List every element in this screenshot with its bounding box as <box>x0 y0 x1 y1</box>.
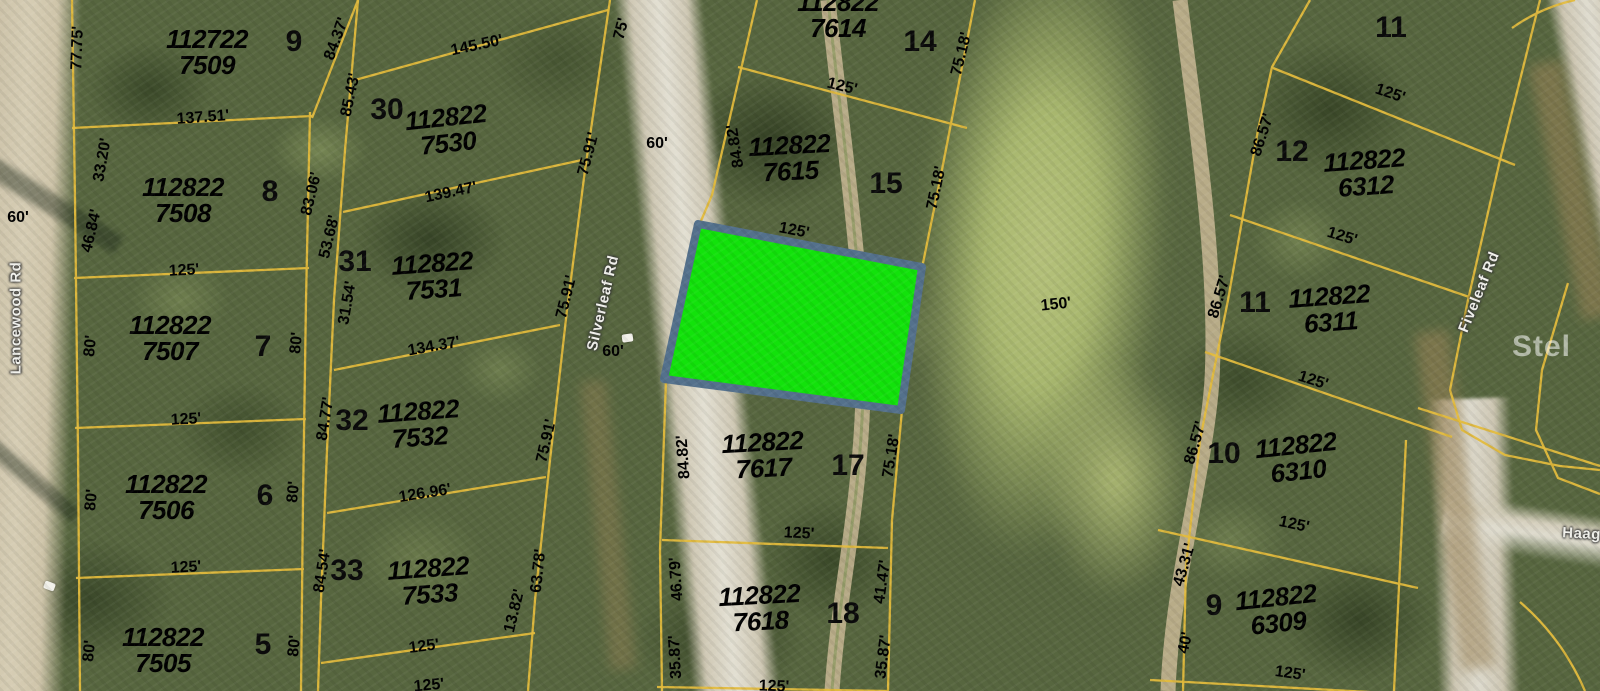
parcel-id-line2: 7617 <box>722 453 805 483</box>
parcel-id-112822-7530: 112822 7530 <box>404 100 491 160</box>
road-label-lancewood: Lancewood Rd <box>8 262 25 375</box>
parcel-id-112722-7509: 112722 7509 <box>166 26 248 78</box>
lot-number: 14 <box>903 27 936 57</box>
lot-number: 31 <box>338 247 371 277</box>
dimension-label: 80' <box>288 332 306 355</box>
dimension-label: 84.82' <box>674 435 693 480</box>
lot-number: 11 <box>1239 288 1271 318</box>
lot-number: 7 <box>255 332 272 362</box>
parcel-id-line2: 7509 <box>166 52 248 78</box>
parcel-id-line2: 7505 <box>122 650 204 676</box>
lot-number: 5 <box>255 630 272 660</box>
lot-number: 6 <box>257 481 274 511</box>
lot-number: 9 <box>1206 591 1223 621</box>
parcel-id-112822-6310: 112822 6310 <box>1254 428 1341 488</box>
parcel-id-line2: 7614 <box>797 15 879 41</box>
dimension-label: 80' <box>83 489 101 512</box>
dimension-label: 80' <box>285 481 303 504</box>
parcel-id-112822-6311: 112822 6311 <box>1287 280 1372 338</box>
dimension-label: 77.75' <box>69 26 87 70</box>
dimension-label: 150' <box>1040 295 1072 314</box>
dimension-label: 125' <box>758 678 789 691</box>
lot-number: 32 <box>335 406 368 436</box>
parcel-id-line1: 112822 <box>122 624 204 650</box>
lot-number: 8 <box>262 177 279 207</box>
dimension-label: 80' <box>286 635 304 658</box>
highlighted-parcel <box>664 224 922 410</box>
parcel-id-112822-7505: 112822 7505 <box>122 624 204 676</box>
parcel-id-112822-7532: 112822 7532 <box>376 395 461 453</box>
lot-number: 11 <box>1375 13 1407 43</box>
dimension-label: 35.87' <box>667 635 685 680</box>
parcel-id-line2: 7618 <box>719 606 802 636</box>
lot-number: 15 <box>869 169 902 199</box>
dirt-trail-right <box>1168 0 1213 691</box>
lot-number: 30 <box>370 95 403 125</box>
lot-number: 9 <box>286 27 303 57</box>
parcel-id-112822-7508: 112822 7508 <box>142 174 224 226</box>
parcel-id-112822-7617: 112822 7617 <box>721 427 805 483</box>
parcel-id-line1: 112822 <box>142 174 224 200</box>
parcel-id-line2: 7508 <box>142 200 224 226</box>
parcel-id-line2: 7506 <box>125 497 207 523</box>
dimension-label: 60' <box>7 210 29 226</box>
dimension-label: 60' <box>646 136 668 152</box>
stellar-mls-watermark: Stel <box>1512 330 1571 364</box>
parcel-id-112822-7507: 112822 7507 <box>129 312 211 364</box>
parcel-id-line2: 7615 <box>749 156 832 186</box>
parcel-id-112822-6312: 112822 6312 <box>1322 144 1407 202</box>
parcel-id-line2: 7507 <box>129 338 211 364</box>
lot-number: 18 <box>826 599 859 629</box>
lot-number: 10 <box>1207 439 1240 469</box>
aerial-parcel-map: 77.75' 84.37' 85.43' 137.51' 33.20' 46.8… <box>0 0 1600 691</box>
dimension-label: 46.79' <box>667 557 686 602</box>
parcel-id-112822-6309: 112822 6309 <box>1234 580 1321 640</box>
dimension-label: 60' <box>602 344 624 360</box>
lot-number: 33 <box>330 556 363 586</box>
lot-number: 17 <box>831 451 864 481</box>
dimension-label: 125' <box>783 525 814 543</box>
dimension-label: 125' <box>170 411 201 429</box>
lot-number: 12 <box>1275 137 1308 167</box>
dimension-label: 125' <box>413 677 445 691</box>
dimension-label: 80' <box>82 335 100 358</box>
parcel-id-line1: 112722 <box>166 26 248 52</box>
road-label-haagen-partial: Haage <box>1562 524 1600 543</box>
parcel-id-112822-7618: 112822 7618 <box>718 580 802 636</box>
parcel-id-112822-7531: 112822 7531 <box>390 247 475 305</box>
parcel-id-line1: 112822 <box>129 312 211 338</box>
dimension-label: 80' <box>81 640 99 663</box>
parcel-id-112822-7614: 112822 7614 <box>797 0 879 41</box>
dimension-label: 125' <box>170 559 201 577</box>
parcel-id-112822-7506: 112822 7506 <box>125 471 207 523</box>
parcel-id-112822-7533: 112822 7533 <box>386 552 471 610</box>
parcel-id-line1: 112822 <box>125 471 207 497</box>
dimension-label: 125' <box>168 262 199 280</box>
parcel-id-112822-7615: 112822 7615 <box>748 130 832 186</box>
